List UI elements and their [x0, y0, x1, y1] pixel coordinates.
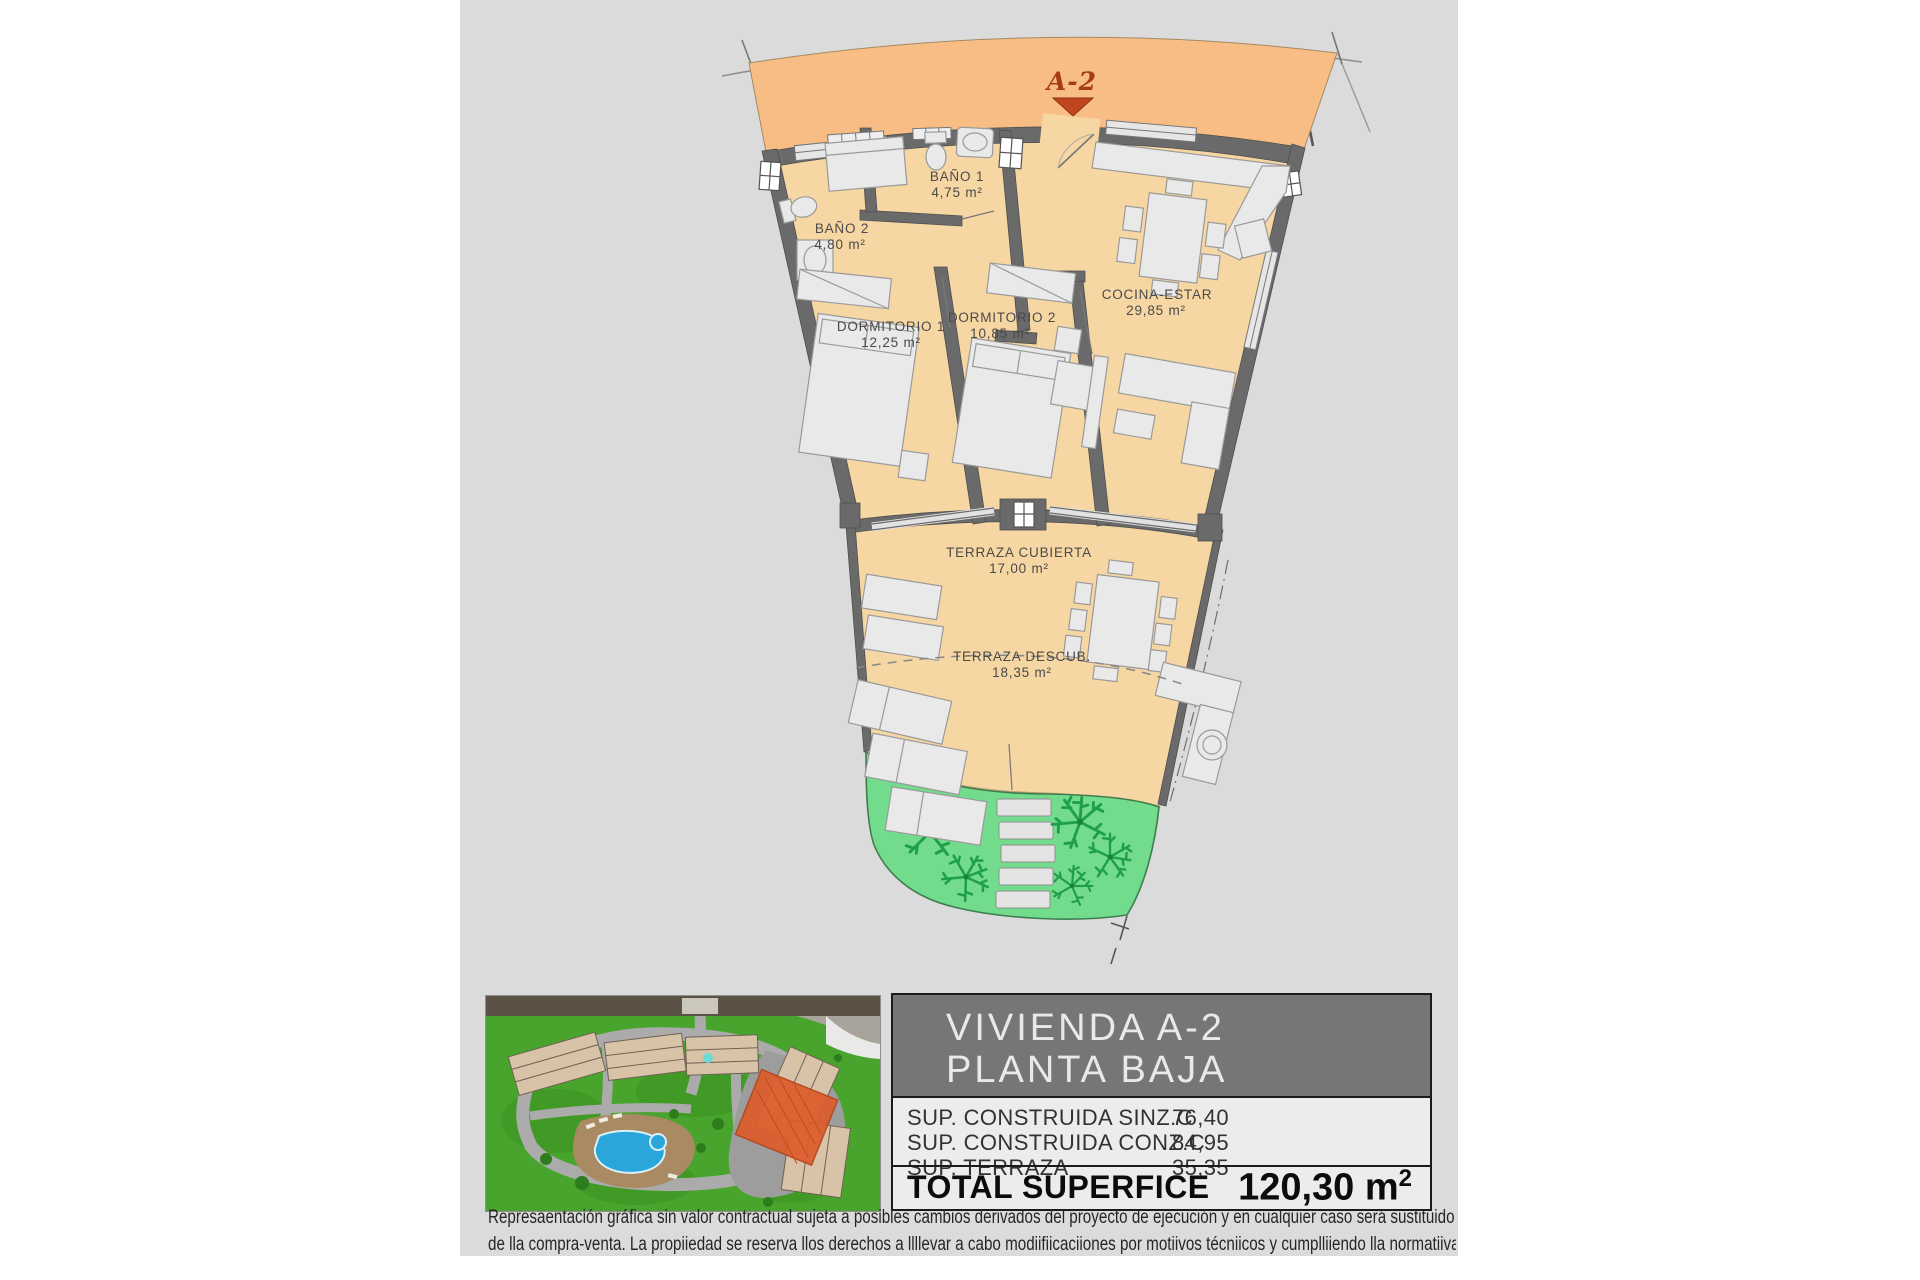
room-label-bano2: BAÑO 2 [815, 221, 869, 236]
info-panel-header: VIVIENDA A-2 PLANTA BAJA [893, 995, 1430, 1098]
disclaimer: Represaentación gráfica sin valor contra… [488, 1204, 1456, 1258]
page: { "plan": { "unit_marker": { "label": "A… [0, 0, 1920, 1280]
room-label-cocina: COCINA-ESTAR [1102, 287, 1213, 302]
room-label-bano1: BAÑO 1 [930, 169, 984, 184]
stepping-stones [996, 799, 1055, 908]
unit-title: VIVIENDA A-2 [946, 1007, 1430, 1049]
site-plan-image [486, 996, 880, 1211]
room-area-bano1: 4,75 m² [931, 185, 982, 200]
room-label-dorm1: DORMITORIO 1 [837, 319, 945, 334]
disclaimer-line-2: de lla compra-venta. La propiiedad se re… [488, 1231, 1456, 1258]
total-label: TOTAL SUPERFICE [907, 1169, 1210, 1206]
floor-title: PLANTA BAJA [946, 1049, 1430, 1091]
total-value-number: 120,30 m [1238, 1166, 1399, 1208]
total-value: 120,30 m2 [1238, 1165, 1412, 1210]
room-area-dorm2: 10,85 m² [970, 326, 1030, 341]
boundary-dash-line [1111, 916, 1129, 964]
drawing-canvas: A-2 [460, 0, 1458, 1256]
room-label-terraza-cubierta: TERRAZA CUBIERTA [946, 545, 1092, 560]
unit-marker-label: A-2 [1045, 67, 1097, 96]
surface-row-label: SUP. CONSTRUIDA CONZ.C [907, 1130, 1172, 1155]
room-area-terraza-cubierta: 17,00 m² [989, 561, 1049, 576]
room-label-terraza-descub: TERRAZA DESCUB. [953, 649, 1091, 664]
total-row: TOTAL SUPERFICE 120,30 m2 [893, 1165, 1430, 1207]
info-panel-body: SUP. CONSTRUIDA SINZ.C 76,40 SUP. CONSTR… [893, 1098, 1430, 1207]
surface-row-value: 84,95 [1172, 1130, 1252, 1155]
surface-row-label: SUP. CONSTRUIDA SINZ.C [907, 1105, 1172, 1130]
disclaimer-line-1: Represaentación gráfica sin valor contra… [488, 1204, 1456, 1231]
room-label-dorm2: DORMITORIO 2 [948, 310, 1056, 325]
surface-row: SUP. CONSTRUIDA SINZ.C 76,40 [907, 1105, 1420, 1130]
room-area-bano2: 4,80 m² [814, 237, 865, 252]
room-area-cocina: 29,85 m² [1126, 303, 1186, 318]
info-panel: VIVIENDA A-2 PLANTA BAJA SUP. CONSTRUIDA… [891, 993, 1432, 1211]
total-value-sup: 2 [1399, 1165, 1412, 1192]
pool-dot [703, 1053, 713, 1063]
surface-row: SUP. CONSTRUIDA CONZ.C 84,95 [907, 1130, 1420, 1155]
room-area-terraza-descub: 18,35 m² [992, 665, 1052, 680]
room-area-dorm1: 12,25 m² [861, 335, 921, 350]
surface-row-value: 76,40 [1172, 1105, 1252, 1130]
